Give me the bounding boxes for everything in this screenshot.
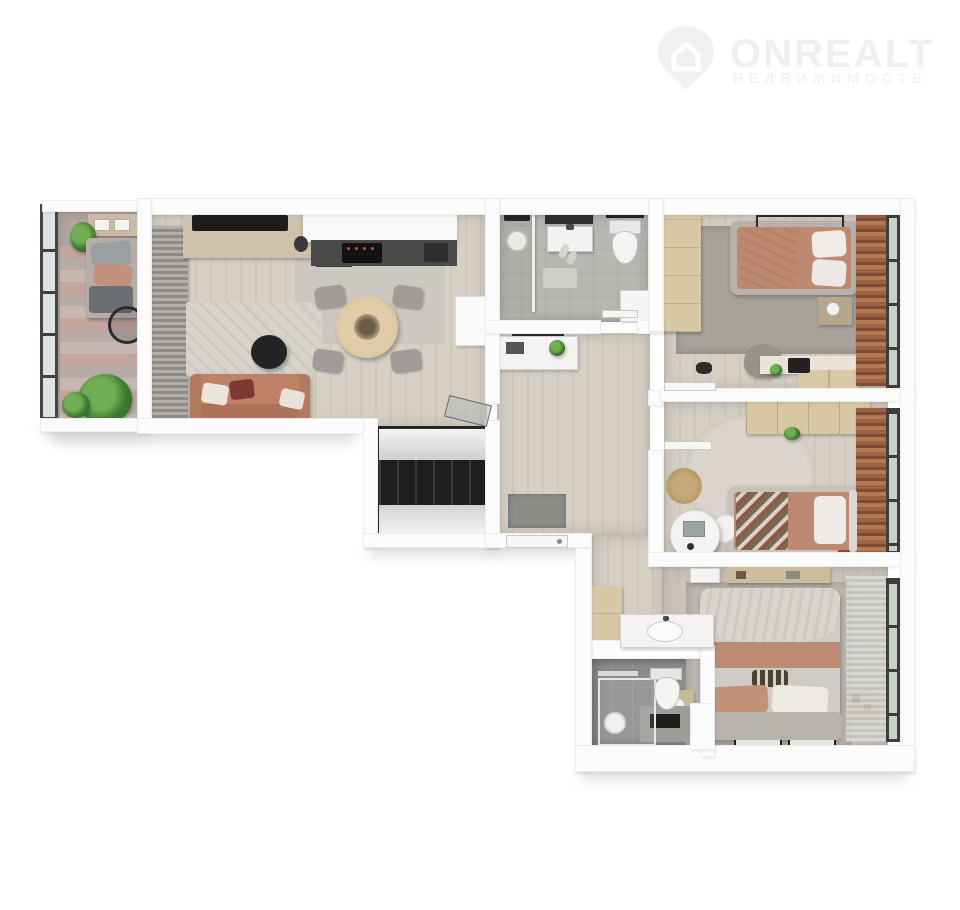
nightstand-lamp xyxy=(826,302,840,316)
cooktop-knob xyxy=(355,247,358,250)
built-in-wardrobe xyxy=(376,426,490,536)
photo-frame xyxy=(94,219,110,231)
kitchen-upper-cabinets xyxy=(303,212,457,242)
wall-right-outer xyxy=(900,198,915,772)
bathroom-sink xyxy=(547,226,593,252)
bedroom2-window xyxy=(886,408,900,554)
console-plant xyxy=(549,340,565,356)
laptop xyxy=(788,358,810,373)
vanity-faucet xyxy=(663,616,669,621)
vanity-counter xyxy=(620,614,714,648)
wardrobe-interior-clothes xyxy=(379,460,487,505)
window-glass xyxy=(889,215,897,385)
console-frame xyxy=(506,342,524,354)
toilet-paper-holder xyxy=(604,712,626,734)
bedroom1-window xyxy=(886,212,900,388)
table-centerpiece xyxy=(354,314,380,340)
cooktop-knob xyxy=(363,247,366,250)
desk-plant xyxy=(770,364,782,376)
dining-chair xyxy=(390,348,423,374)
table-item xyxy=(687,543,694,550)
bench-pillow xyxy=(93,262,133,287)
wall-wardrobe-left xyxy=(363,418,378,548)
sofa-pillow xyxy=(229,379,255,401)
wall-frame xyxy=(690,568,720,583)
wall-balcony-living xyxy=(137,198,152,432)
master-window xyxy=(886,578,900,742)
master-bed-fold xyxy=(700,588,840,644)
sofa-pillow xyxy=(201,382,230,406)
bedroom2-door xyxy=(664,441,712,450)
master-pillow-salmon xyxy=(711,685,768,716)
large-plant-leaf xyxy=(62,392,90,418)
shoe-cabinet xyxy=(592,586,622,642)
coffee-table xyxy=(251,335,287,369)
sofa xyxy=(190,374,310,424)
wall-bath1-bottom-left xyxy=(485,320,601,334)
bedroom1-curtain xyxy=(856,214,886,386)
bed2-blanket xyxy=(736,492,788,550)
table-laptop xyxy=(683,521,705,537)
dining-chair xyxy=(314,284,347,310)
watermark-logo: ONREALT НЕДВИЖИМОСТЬ xyxy=(654,22,944,94)
watermark-tagline: НЕДВИЖИМОСТЬ xyxy=(733,70,928,86)
shower-head xyxy=(504,214,530,221)
bed1-nightstand xyxy=(818,297,852,325)
entrance-door xyxy=(506,535,568,548)
wall-wardrobe-right xyxy=(485,420,500,548)
bed1-pillow xyxy=(811,230,847,258)
window-glass xyxy=(889,411,897,551)
bed2-pillow xyxy=(814,496,846,544)
master-pillow-white xyxy=(771,685,828,716)
cooktop xyxy=(342,243,382,263)
master-sheer-curtain xyxy=(846,576,888,742)
wall-living-right xyxy=(485,198,500,404)
doormat xyxy=(508,494,566,528)
wall-top xyxy=(137,198,915,215)
wardrobe-door-mirror xyxy=(379,505,487,533)
bedroom2-wardrobe xyxy=(746,400,870,434)
hall-console xyxy=(498,336,578,370)
bedroom1-wardrobe xyxy=(663,214,701,332)
shower-zone xyxy=(497,213,533,313)
balcony-glass xyxy=(43,207,55,425)
wall-wardrobe-bottom xyxy=(363,533,500,548)
wall-living-bottom xyxy=(137,418,372,434)
kitchen-sink xyxy=(424,243,448,262)
dining-table xyxy=(336,296,398,358)
master-headboard xyxy=(698,712,842,740)
bathroom1-door xyxy=(602,310,638,318)
bed1-duvet xyxy=(739,228,797,288)
floor-plan: ONREALT НЕДВИЖИМОСТЬ xyxy=(0,0,960,910)
wall-bottom-outer xyxy=(575,745,915,772)
cooktop-knob xyxy=(347,247,350,250)
sink-faucet xyxy=(566,224,574,230)
bed2-headboard xyxy=(849,490,857,552)
entrance-door-handle xyxy=(557,539,562,544)
shelf-item xyxy=(736,571,746,579)
shower2-enclosure xyxy=(598,678,656,746)
living-rug xyxy=(186,302,322,376)
vanity-sink xyxy=(647,621,683,642)
wall-bath2-step xyxy=(690,703,715,750)
shelf-item xyxy=(786,571,800,579)
wall-shelf xyxy=(726,567,830,583)
bedroom2-curtain xyxy=(856,408,886,554)
bathroom-mirror xyxy=(545,215,593,224)
speaker xyxy=(294,236,308,252)
shower-drain xyxy=(506,230,528,252)
master-bed-throw xyxy=(700,642,840,668)
wall-master-left xyxy=(575,548,592,772)
shower-glass xyxy=(532,214,535,312)
bath-mat xyxy=(543,268,577,288)
tv xyxy=(192,215,288,231)
bed1-pillow xyxy=(811,259,847,287)
wall-bedroom2-master xyxy=(648,552,915,567)
cooktop-knob xyxy=(371,247,374,250)
jute-rug xyxy=(666,468,702,504)
shower2-bar xyxy=(598,671,638,676)
wall-balcony-top xyxy=(42,200,142,212)
sofa-armrest xyxy=(190,374,201,424)
photo-frame xyxy=(114,219,130,231)
window-glass xyxy=(889,581,897,739)
location-pin-house-icon xyxy=(654,24,718,92)
balcony-glazing xyxy=(40,204,58,428)
bedroom1-door xyxy=(664,382,716,391)
wall-vestibule-upper xyxy=(648,198,664,332)
dining-chair xyxy=(392,284,425,310)
gamepad xyxy=(696,362,712,374)
wall-vestibule-lower xyxy=(648,450,664,567)
dining-chair xyxy=(312,348,345,374)
wardrobe-plant xyxy=(784,427,800,440)
wardrobe-door-mirror xyxy=(379,429,487,460)
